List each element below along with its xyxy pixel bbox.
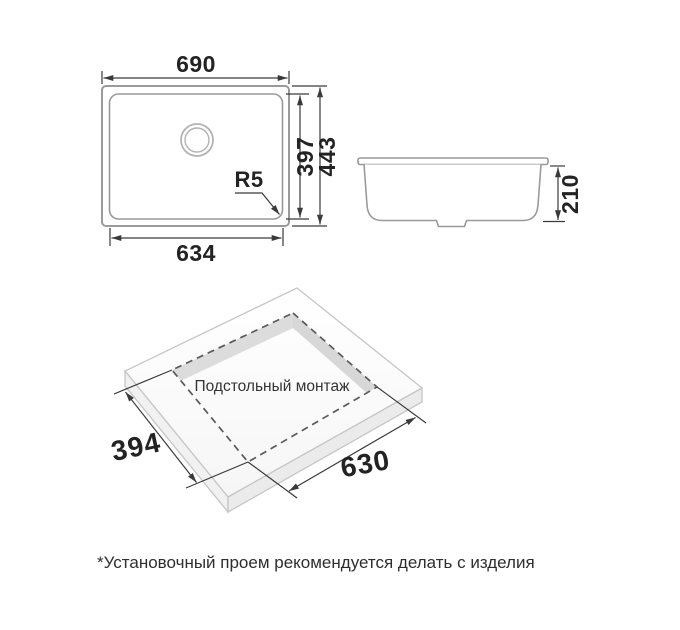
sink-dimension-drawing: 690 397 443 634 [0, 0, 680, 630]
corner-radius-value: R5 [234, 167, 263, 192]
sink-bowl-profile [364, 165, 541, 227]
depth-value: 210 [557, 174, 583, 214]
dimension-depth: 210 [543, 166, 583, 222]
technical-drawing-page: 690 397 443 634 [0, 0, 680, 630]
drain-inner-circle [185, 128, 209, 152]
top-view: 690 397 443 634 [102, 51, 340, 266]
footnote: *Установочный проем рекомендуется делать… [97, 553, 535, 572]
side-view: 210 [358, 158, 583, 227]
cutout-length-value: 630 [338, 444, 392, 483]
sink-flange-profile [358, 158, 548, 165]
isometric-view: Подстольный монтаж 394 630 [108, 288, 426, 512]
dimension-overall-width: 690 [102, 51, 289, 84]
overall-width-value: 690 [176, 51, 216, 77]
undermount-label: Подстольный монтаж [195, 378, 351, 395]
overall-height-value: 443 [314, 137, 340, 177]
inner-width-value: 634 [176, 240, 216, 266]
dimension-inner-width: 634 [110, 228, 283, 266]
cutout-width-value: 394 [108, 426, 163, 467]
